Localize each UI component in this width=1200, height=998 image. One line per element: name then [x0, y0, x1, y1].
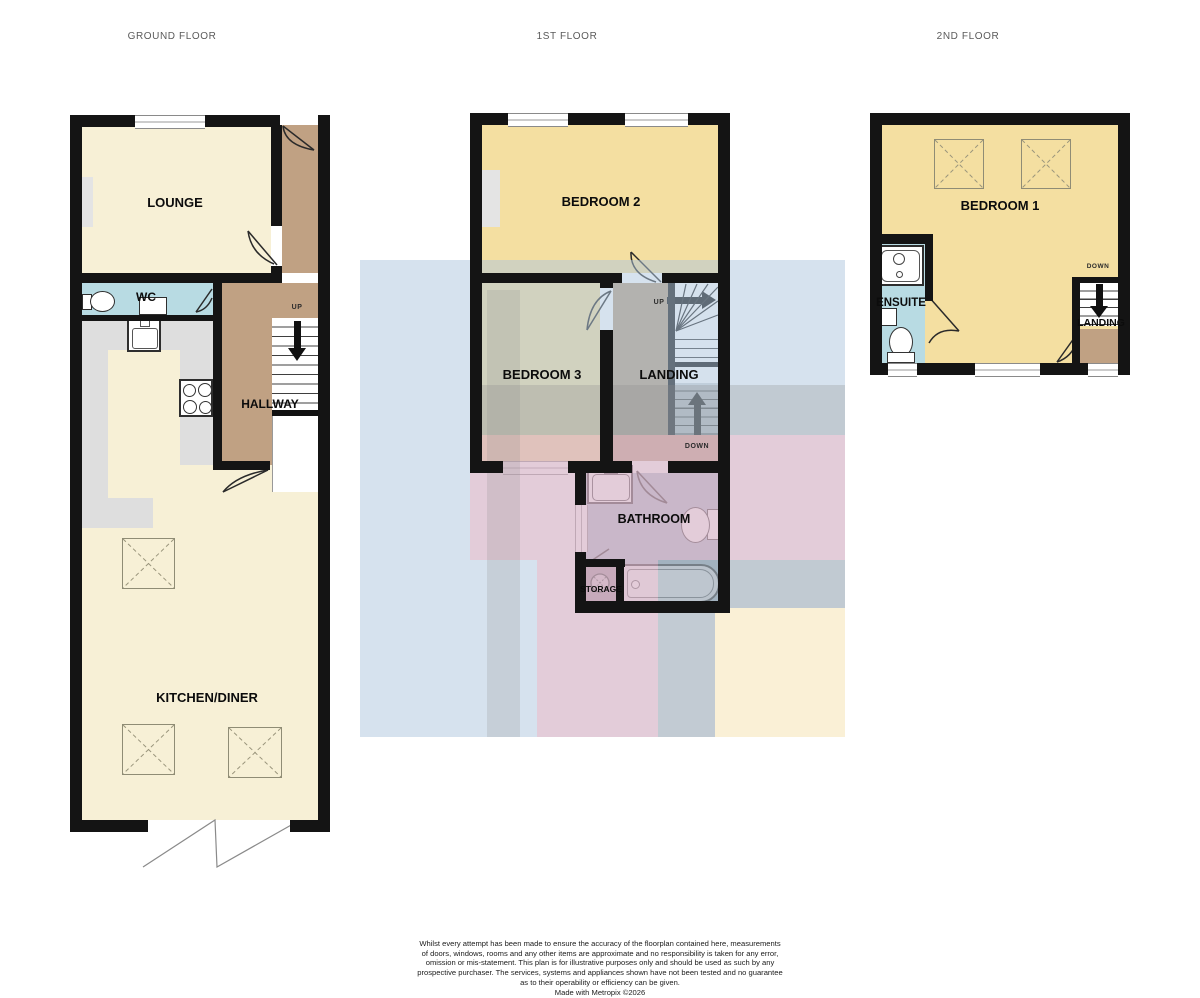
lounge-radiator: [82, 177, 93, 227]
hob-burner-icon: [199, 401, 212, 414]
wc-label: WC: [136, 290, 156, 304]
bathroom-sink-basin: [592, 474, 630, 501]
landing-window: [1088, 363, 1118, 377]
bedroom2-radiator: [482, 170, 500, 227]
kitchen-floor-island: [108, 350, 180, 465]
hob-burner-icon: [183, 400, 197, 414]
kitchen-faucet-icon: [140, 320, 150, 327]
ensuite-window: [888, 363, 917, 377]
stairs-1f-down-arrowhead-icon: [688, 392, 706, 405]
shower-head-icon: [893, 253, 905, 265]
metropix-credit: Made with Metropix ©2026: [340, 988, 860, 998]
ground-stairs-void: [272, 416, 319, 492]
hall-band: [222, 283, 318, 318]
hallway-label: HALLWAY: [241, 397, 299, 411]
landing-2f-label: LANDING: [1077, 317, 1125, 329]
disclaimer-line: of doors, windows, rooms and any other i…: [340, 949, 860, 959]
stairs-1f-up-label: UP: [654, 299, 665, 306]
room-hallway: [222, 318, 272, 470]
stairs-2f-down-arrow: [1096, 284, 1103, 307]
stairs-1f-upper-treads: [675, 331, 718, 364]
bathroom-label: BATHROOM: [618, 512, 691, 526]
stairs-1f-up-arrowhead-icon: [702, 291, 716, 309]
stairs-1f-down-arrow: [694, 403, 701, 435]
landing-1f-label: LANDING: [639, 367, 698, 382]
bedroom2-window: [625, 113, 688, 127]
wc-toilet-icon: [90, 291, 115, 312]
bedroom3-label: BEDROOM 3: [503, 367, 582, 382]
bedroom1-window: [975, 363, 1040, 377]
kitchen-sink-basin: [132, 328, 158, 349]
ground-stairs-arrowhead-icon: [288, 348, 306, 361]
disclaimer: Whilst every attempt has been made to en…: [340, 939, 860, 997]
hob-burner-icon: [198, 383, 212, 397]
stairs-2f-down-label: DOWN: [1087, 263, 1110, 270]
skylight-icon: [122, 724, 175, 775]
disclaimer-line: as to their operability or efficiency ca…: [340, 978, 860, 988]
bath-tap-icon: [631, 580, 640, 589]
french-doors-open: [143, 820, 293, 867]
stairs-1f-down-label: DOWN: [685, 443, 709, 450]
skylight-icon: [122, 538, 175, 589]
ensuite-toilet-tank-icon: [887, 352, 915, 363]
skylight-icon: [228, 727, 282, 778]
second-floor-title: 2ND FLOOR: [937, 31, 1000, 42]
landing-2f-patch: [1080, 329, 1118, 363]
kitchen-diner-label: KITCHEN/DINER: [156, 690, 258, 705]
hob-burner-icon: [183, 384, 196, 397]
counter-foot: [108, 498, 153, 528]
counter-left: [82, 465, 108, 528]
bathroom-window: [575, 505, 588, 552]
bedroom3-window: [503, 461, 568, 475]
skylight-icon: [1021, 139, 1071, 189]
first-floor-title: 1ST FLOOR: [537, 31, 598, 42]
bath-inner: [627, 569, 714, 598]
ensuite-label: ENSUITE: [876, 297, 926, 309]
bedroom1-label: BEDROOM 1: [961, 198, 1040, 213]
bedroom2-window: [508, 113, 568, 127]
ground-stairs-arrow: [294, 321, 301, 348]
disclaimer-line: omission or mis-statement. This plan is …: [340, 958, 860, 968]
lounge-label: LOUNGE: [147, 195, 203, 210]
disclaimer-line: prospective purchaser. The services, sys…: [340, 968, 860, 978]
storage-label: STORAGE: [580, 584, 622, 594]
shower-drain-icon: [896, 271, 903, 278]
disclaimer-line: Whilst every attempt has been made to en…: [340, 939, 860, 949]
floorplan-page: { "floors": [ { "title": "GROUND FLOOR",…: [0, 0, 1200, 998]
ground-up-label: UP: [292, 304, 303, 311]
skylight-icon: [934, 139, 984, 189]
bedroom2-label: BEDROOM 2: [562, 194, 641, 209]
entry-hall: [282, 125, 318, 273]
lounge-window: [135, 115, 205, 129]
ground-floor-title: GROUND FLOOR: [128, 31, 217, 42]
